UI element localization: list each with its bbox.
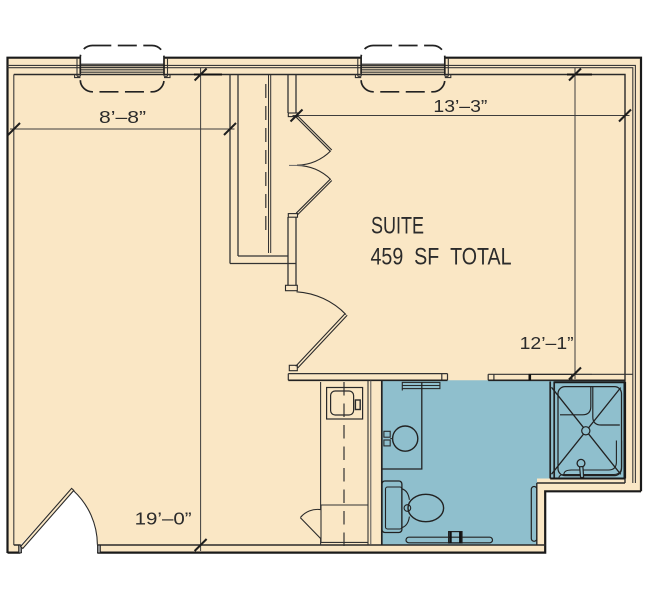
svg-text:8’–8”: 8’–8”: [99, 107, 146, 127]
svg-text:13’–3”: 13’–3”: [433, 96, 487, 116]
svg-text:12’–1”: 12’–1”: [520, 333, 574, 353]
svg-text:19’–0”: 19’–0”: [135, 509, 192, 529]
svg-text:459 SF TOTAL: 459 SF TOTAL: [371, 243, 512, 270]
svg-text:SUITE: SUITE: [371, 213, 424, 240]
